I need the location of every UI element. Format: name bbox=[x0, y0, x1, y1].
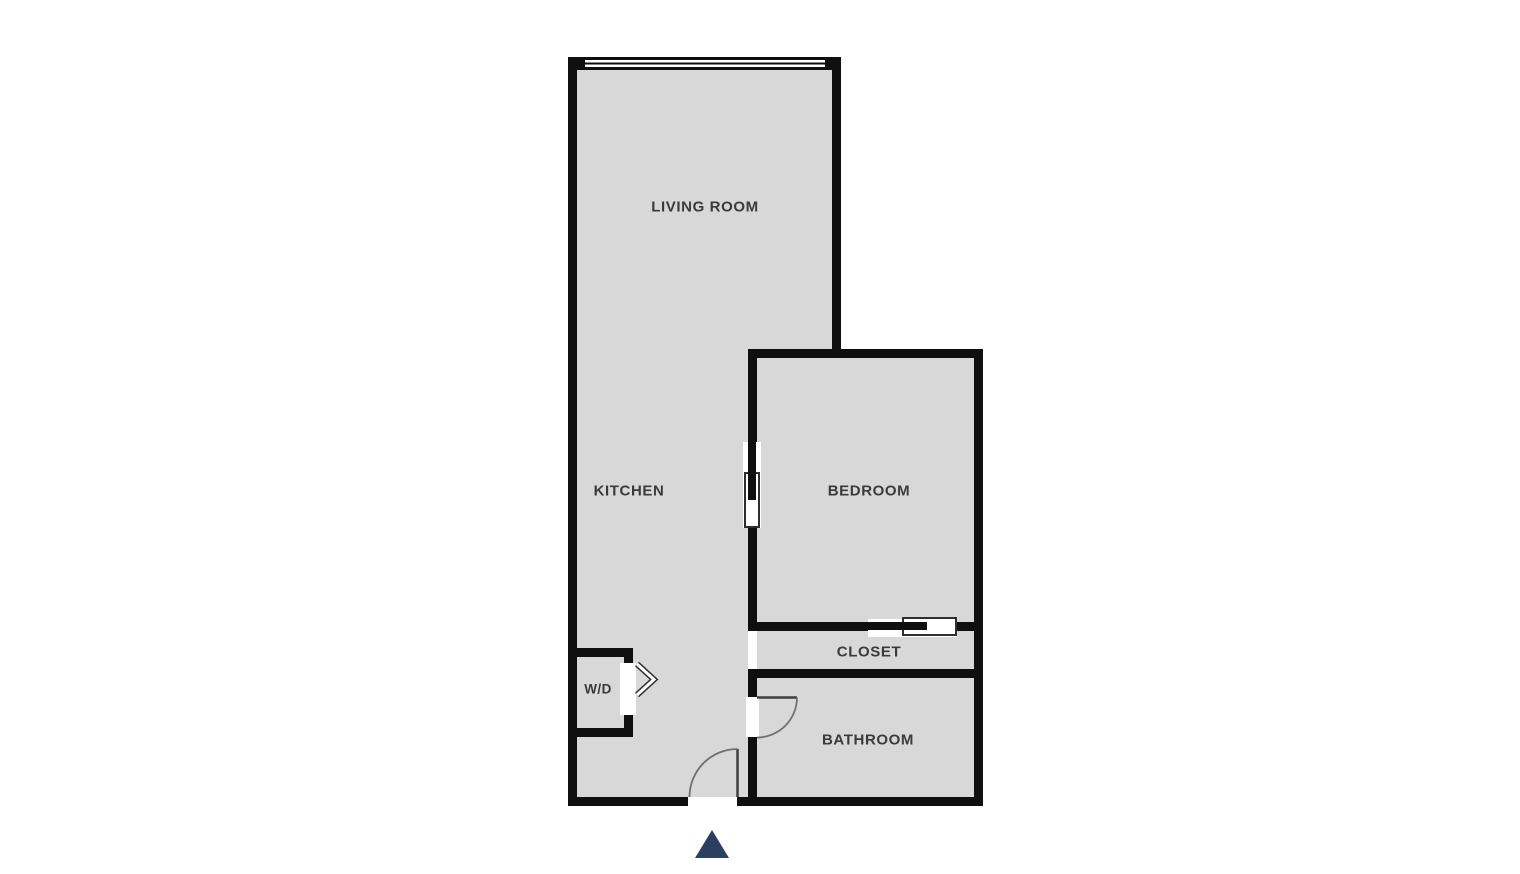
bathroom-label: BATHROOM bbox=[822, 732, 914, 749]
wall-bedroom-left-upper bbox=[748, 358, 757, 442]
wall-bedroom-left-lower bbox=[748, 528, 757, 622]
wall-top-right-stub bbox=[825, 57, 832, 70]
floorplan-canvas: LIVING ROOM KITCHEN BEDROOM CLOSET BATHR… bbox=[0, 0, 1520, 874]
wall-right-exterior bbox=[974, 349, 983, 806]
bedroom-label: BEDROOM bbox=[828, 483, 911, 500]
sliding-door-bar-icon bbox=[868, 622, 927, 630]
wall-closet-bottom bbox=[748, 669, 974, 678]
wall-livingroom-right bbox=[832, 57, 841, 358]
wall-wd-bottom bbox=[568, 728, 633, 737]
wall-wd-top bbox=[568, 648, 633, 657]
washer-dryer-label: W/D bbox=[584, 682, 611, 697]
wall-bottom-right bbox=[737, 797, 983, 806]
living-room-label: LIVING ROOM bbox=[651, 199, 758, 216]
kitchen-label: KITCHEN bbox=[594, 483, 665, 500]
bathroom-door-opening bbox=[746, 697, 759, 737]
closet-label: CLOSET bbox=[837, 644, 901, 661]
wall-bottom-left bbox=[568, 797, 688, 806]
wall-left-exterior bbox=[568, 57, 577, 806]
wd-door-opening bbox=[620, 663, 636, 715]
wall-wd-right-lower bbox=[624, 715, 633, 728]
wall-top-left-stub bbox=[577, 57, 585, 70]
wall-bathroom-left-lower bbox=[748, 737, 757, 797]
window-icon bbox=[585, 57, 825, 70]
entrance-arrow-icon bbox=[695, 830, 729, 858]
wall-bedroom-top bbox=[748, 349, 983, 358]
pocket-door-bar-icon bbox=[748, 442, 756, 500]
wall-bathroom-left-upper bbox=[748, 678, 757, 697]
